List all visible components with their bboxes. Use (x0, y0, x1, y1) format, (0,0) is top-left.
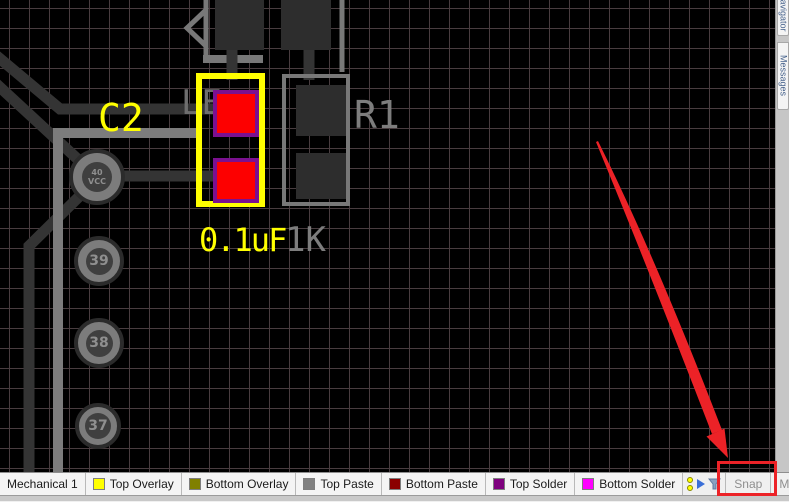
layer-bar-icon-cluster (683, 473, 726, 495)
right-panel-tab-2[interactable]: Messages (777, 42, 789, 110)
layer-tab-label: Bottom Solder (599, 477, 675, 491)
layer-tab-bottom-overlay[interactable]: Bottom Overlay (182, 473, 297, 495)
right-panel-tab-1-label: Navigator (779, 0, 788, 31)
layer-tab-label: Top Paste (320, 477, 373, 491)
layer-color-swatch (93, 478, 105, 490)
right-dock-strip: Navigator Messages (775, 0, 789, 472)
right-panel-tab-1[interactable]: Navigator (777, 0, 789, 36)
red-arrow-annotation (0, 0, 775, 472)
pcb-canvas[interactable]: LE 40VCC393837 C2 R1 0.1uF 1K (0, 0, 775, 472)
layer-tab-top-overlay[interactable]: Top Overlay (86, 473, 182, 495)
snap-button[interactable]: Snap (726, 473, 771, 495)
layer-tab-label: Mechanical 1 (7, 477, 78, 491)
layer-tab-bar: Mechanical 1Top OverlayBottom OverlayTop… (0, 472, 789, 502)
layer-color-swatch (493, 478, 505, 490)
layer-tab-label: Top Overlay (110, 477, 174, 491)
layer-tab-bottom-solder[interactable]: Bottom Solder (575, 473, 683, 495)
filter-icon[interactable] (708, 478, 721, 490)
layer-color-swatch (582, 478, 594, 490)
layer-color-swatch (189, 478, 201, 490)
layer-color-swatch (389, 478, 401, 490)
layer-tab-top-solder[interactable]: Top Solder (486, 473, 575, 495)
layer-tab-label: Bottom Overlay (206, 477, 289, 491)
layer-tab-label: Bottom Paste (406, 477, 478, 491)
layer-pair-icon[interactable] (687, 477, 693, 491)
right-panel-tab-2-label: Messages (779, 55, 788, 96)
layer-tab-mechanical-1[interactable]: Mechanical 1 (0, 473, 86, 495)
pcb-editor-window: LE 40VCC393837 C2 R1 0.1uF 1K Navigator … (0, 0, 789, 502)
layer-tabs-row: Mechanical 1Top OverlayBottom OverlayTop… (0, 472, 789, 495)
mask-level-button[interactable]: Mask Level (771, 473, 789, 495)
layer-tab-label: Top Solder (510, 477, 567, 491)
layer-color-swatch (303, 478, 315, 490)
layer-tab-top-paste[interactable]: Top Paste (296, 473, 381, 495)
play-icon[interactable] (695, 478, 706, 490)
horizontal-scroll-strip[interactable] (0, 495, 789, 501)
layer-tab-bottom-paste[interactable]: Bottom Paste (382, 473, 486, 495)
